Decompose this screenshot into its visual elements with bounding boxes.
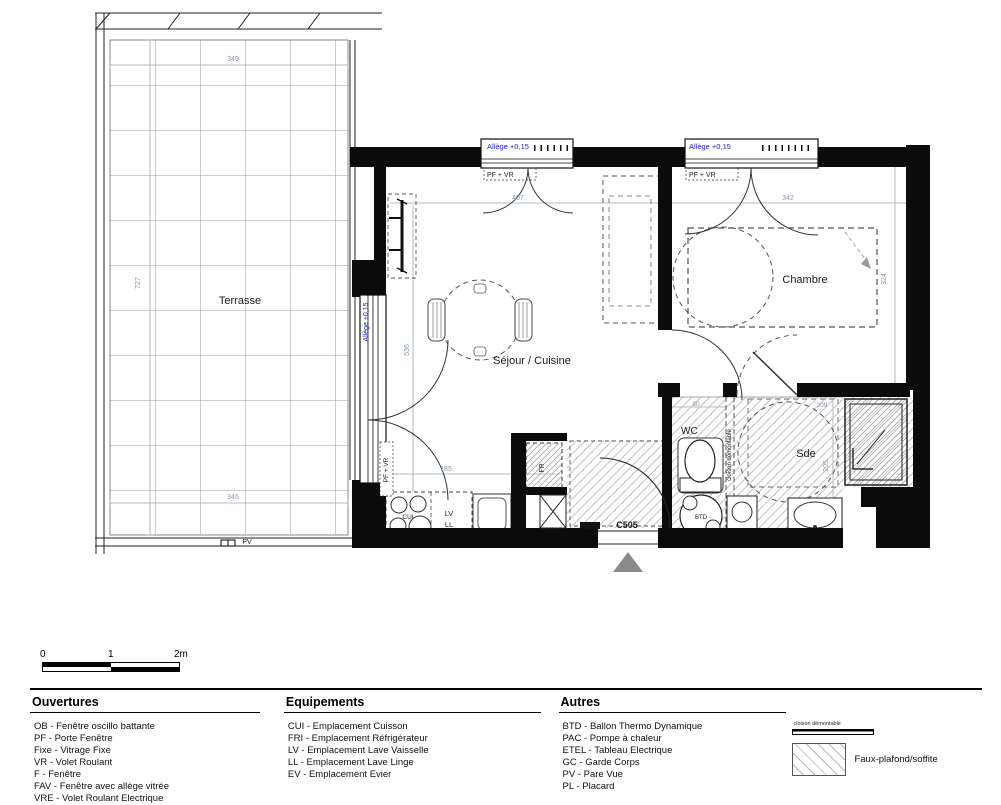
legend-item: CUI - Emplacement Cuisson <box>288 721 541 733</box>
equipment-label-ll: LL <box>445 520 453 529</box>
washbasin-column <box>727 496 757 532</box>
equipment-label-lv: LV <box>445 509 454 518</box>
pare-vue-marker <box>228 540 235 546</box>
window-type-label: PF + VR <box>689 172 716 179</box>
legend-item: ETEL - Tableau Electrique <box>563 745 787 757</box>
sde-door-leaf <box>753 352 797 395</box>
scale-tick-0: 0 <box>40 649 46 660</box>
legend-title-autres: Autres <box>559 695 787 713</box>
railing-ticks <box>96 13 320 29</box>
allege-label: Allège +0,15 <box>689 142 731 151</box>
legend-item: PAC - Pompe à chaleur <box>563 733 787 745</box>
legend-item: PV - Pare Vue <box>563 769 787 781</box>
dim-sejour-height: 536 <box>404 344 411 356</box>
legend-title-ouvertures: Ouvertures <box>30 695 260 713</box>
faux-plafond-swatch <box>792 743 846 776</box>
equipment-label-cui: CUI <box>402 514 413 521</box>
dim-sde-right: 205 <box>823 460 830 472</box>
legend-item: PF - Porte Fenêtre <box>34 733 260 745</box>
dim-window-sejour: 407 <box>512 195 524 202</box>
legend-item: LL - Emplacement Lave Linge <box>288 757 541 769</box>
floor-plan-drawing: Terrasse Séjour / Cuisine Chambre WC Sde… <box>0 0 1001 690</box>
scale-bar-graphic <box>42 662 180 672</box>
legend-column-autres: Autres BTD - Ballon Thermo Dynamique PAC… <box>559 695 787 805</box>
partition-symbol-label: cloison démontable <box>793 721 840 727</box>
dim-terrace-top: 349 <box>227 56 239 63</box>
room-label-chambre: Chambre <box>782 274 827 286</box>
room-label-sde: Sde <box>796 448 816 460</box>
allege-label: Allège +0,15 <box>363 302 370 341</box>
scale-tick-2m: 2m <box>174 649 188 660</box>
legend-column-ouvertures: Ouvertures OB - Fenêtre oscillo battante… <box>30 695 260 805</box>
dim-window-chambre: 342 <box>782 195 794 202</box>
unit-number: C505 <box>616 520 638 530</box>
chair <box>428 299 445 341</box>
dim-chambre-height: 324 <box>881 273 888 285</box>
legend-item: VR - Volet Roulant <box>34 757 260 769</box>
equipment-label-fr: FR <box>539 463 546 472</box>
faux-plafond-label: Faux-plafond/soffite <box>854 754 937 765</box>
pare-vue-label: PV <box>242 539 252 546</box>
legend-item: FRI - Emplacement Réfrigérateur <box>288 733 541 745</box>
legend: Ouvertures OB - Fenêtre oscillo battante… <box>30 688 982 805</box>
legend-title-equipements: Equipements <box>284 695 541 713</box>
dim-sejour-width: 185 <box>440 466 452 473</box>
partition-symbol <box>792 729 874 735</box>
legend-item: EV - Emplacement Evier <box>288 769 541 781</box>
legend-symbols: cloison démontable Faux-plafond/soffite <box>790 695 982 805</box>
legend-item: F - Fenêtre <box>34 769 260 781</box>
window-type-label: PF + VR <box>383 457 390 482</box>
legend-item: VRE - Volet Roulant Electrique <box>34 793 260 805</box>
room-label-terrasse: Terrasse <box>219 295 261 307</box>
pare-vue-marker <box>221 540 228 546</box>
legend-item: LV - Emplacement Lave Vaisselle <box>288 745 541 757</box>
placard-outline <box>603 176 663 323</box>
legend-item: GC - Garde Corps <box>563 757 787 769</box>
room-label-sejour: Séjour / Cuisine <box>493 355 571 367</box>
floor-plan-page: Terrasse Séjour / Cuisine Chambre WC Sde… <box>0 0 1001 800</box>
allege-label: Allège +0,15 <box>487 142 529 151</box>
room-label-wc: WC <box>681 426 698 437</box>
dim-terrace-left: 727 <box>135 277 142 289</box>
scale-bar: 0 1 2m <box>42 649 192 677</box>
partition-label: cloison démontable <box>727 428 733 480</box>
toilet-bowl <box>685 440 715 482</box>
legend-column-equipements: Equipements CUI - Emplacement Cuisson FR… <box>284 695 541 805</box>
equipment-label-btd: BTD <box>695 515 708 521</box>
window-type-label: PF + VR <box>487 172 514 179</box>
dim-terrace-bottom: 346 <box>227 494 239 501</box>
slope-arrow <box>861 257 871 269</box>
dim-sde-top: 209 <box>817 402 828 409</box>
legend-item: FAV - Fenêtre avec allège vitrée <box>34 781 260 793</box>
legend-item: OB - Fenêtre oscillo battante <box>34 721 260 733</box>
legend-item: Fixe - Vitrage Fixe <box>34 745 260 757</box>
scale-tick-1: 1 <box>108 649 114 660</box>
shower <box>845 399 907 485</box>
chair <box>515 299 532 341</box>
legend-item: PL - Placard <box>563 781 787 793</box>
window-chambre <box>685 139 818 235</box>
dim-wc-width: 80 <box>692 401 700 408</box>
legend-item: BTD - Ballon Thermo Dynamique <box>563 721 787 733</box>
entrance-triangle-marker <box>613 552 643 572</box>
